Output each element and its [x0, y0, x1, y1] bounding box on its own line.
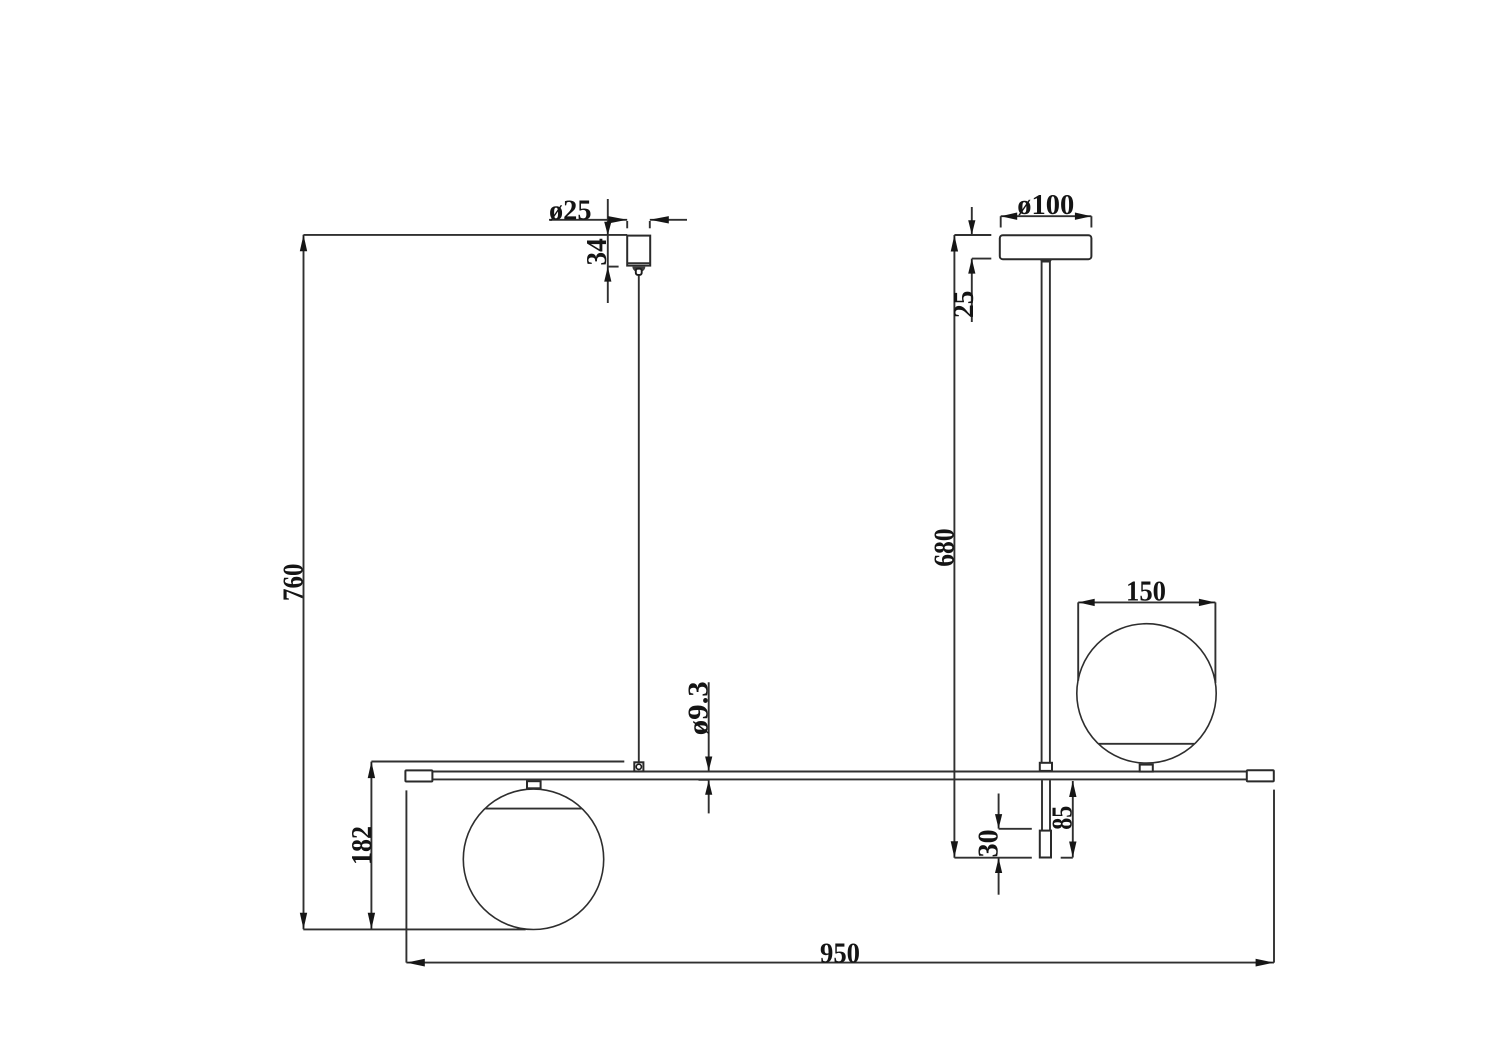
svg-text:150: 150 [1126, 575, 1166, 607]
svg-text:85: 85 [1047, 806, 1079, 830]
svg-text:182: 182 [346, 826, 378, 865]
svg-text:34: 34 [581, 238, 613, 265]
svg-text:760: 760 [278, 564, 310, 601]
svg-text:25: 25 [948, 291, 980, 318]
svg-text:950: 950 [820, 938, 860, 970]
svg-text:680: 680 [929, 528, 961, 566]
svg-text:ø100: ø100 [1017, 189, 1074, 221]
svg-text:30: 30 [973, 829, 1005, 857]
svg-text:ø25: ø25 [549, 195, 592, 227]
svg-text:ø9.3: ø9.3 [683, 681, 715, 735]
